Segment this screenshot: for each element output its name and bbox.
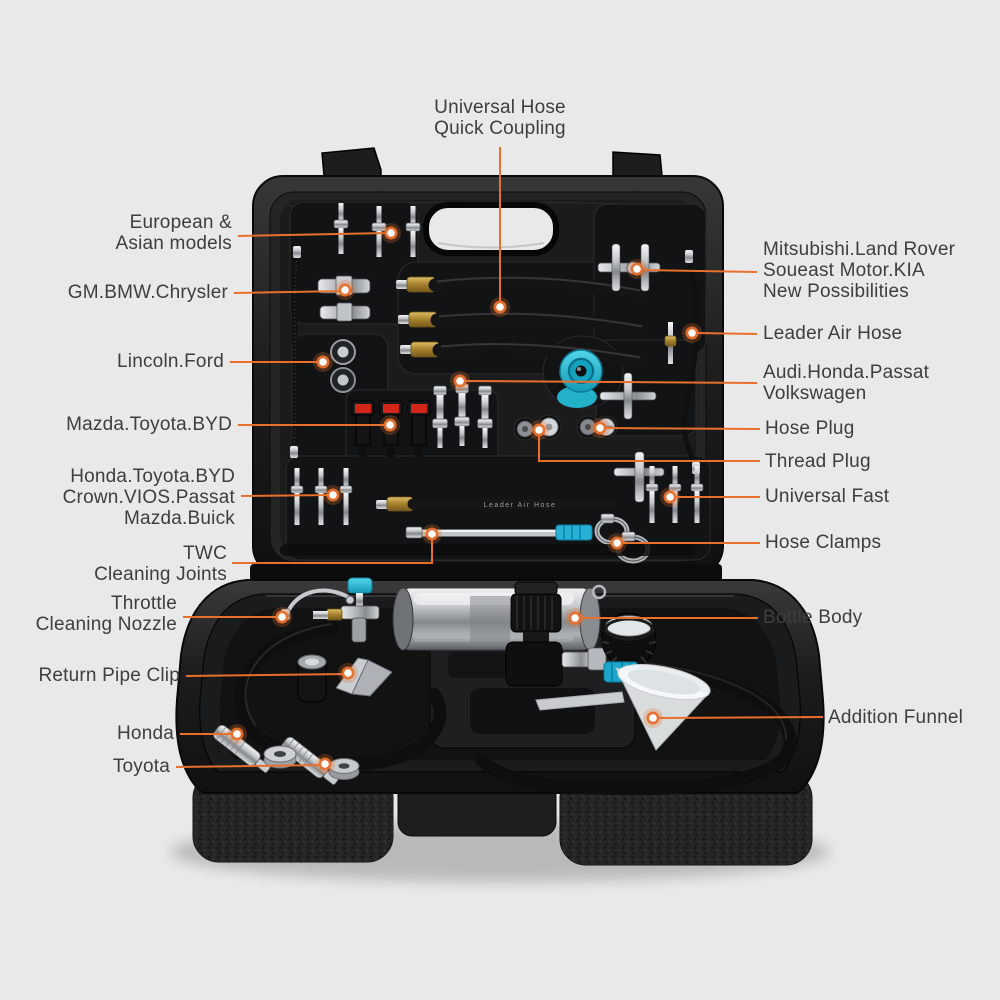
callout-dot-lincoln-ford [313, 352, 333, 372]
callout-dot-honda [227, 724, 247, 744]
callout-line-european-asian-models [238, 233, 391, 236]
callout-line-twc-cleaning-joints [232, 537, 432, 563]
product-infographic: Leader Air Hose [0, 0, 1000, 1000]
callout-dot-leader-air-hose [682, 323, 702, 343]
callout-dot-throttle-cleaning-nozzle [272, 607, 292, 627]
callout-dot-european-asian-models [381, 223, 401, 243]
callout-line-honda-toyota-byd-crown-vios-passat-mazda-buick [241, 495, 333, 496]
callout-dot-addition-funnel [643, 708, 663, 728]
callout-line-audi-honda-passat-volkswagen [466, 381, 757, 383]
callout-dot-universal-fast [660, 487, 680, 507]
callout-dot-bottle-body [565, 608, 585, 628]
callout-line-gm-bmw-chrysler [234, 291, 345, 293]
callout-line-mitsubishi-landrover-soueast-kia [641, 270, 757, 272]
callout-dot-gm-bmw-chrysler [335, 280, 355, 300]
callout-line-leader-air-hose [697, 333, 757, 334]
callout-dot-return-pipe-clip [338, 663, 358, 683]
callout-dot-toyota [315, 754, 335, 774]
callout-line-thread-plug [539, 435, 760, 461]
callout-line-toyota [176, 765, 325, 767]
callout-dot-mazda-toyota-byd [380, 415, 400, 435]
callout-line-addition-funnel [659, 717, 823, 718]
callout-overlay [0, 0, 1000, 1000]
callout-dot-audi-honda-passat-volkswagen [450, 371, 470, 391]
callout-dot-hose-plug [590, 418, 610, 438]
callout-line-return-pipe-clip [186, 674, 348, 676]
callout-dot-universal-hose-quick-coupling [490, 297, 510, 317]
callout-dot-mitsubishi-landrover-soueast-kia [627, 259, 647, 279]
callout-dot-hose-clamps [607, 533, 627, 553]
callout-dot-twc-cleaning-joints [422, 524, 442, 544]
callout-dot-thread-plug [529, 420, 549, 440]
callout-line-hose-plug [606, 428, 760, 429]
callout-dot-honda-toyota-byd-crown-vios-passat-mazda-buick [323, 485, 343, 505]
